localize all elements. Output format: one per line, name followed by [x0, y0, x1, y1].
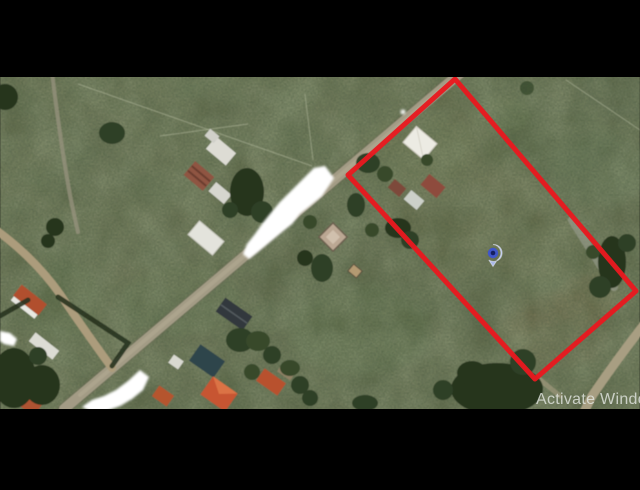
screenshot-root: Activate Windo [0, 0, 640, 490]
satellite-map[interactable] [0, 0, 640, 490]
letterbox-top [0, 0, 640, 77]
terrain [0, 60, 640, 420]
pin-dot [491, 251, 496, 256]
aerial-imagery [0, 60, 640, 420]
letterbox-bottom [0, 409, 640, 490]
windows-activation-watermark: Activate Windo [536, 390, 640, 411]
